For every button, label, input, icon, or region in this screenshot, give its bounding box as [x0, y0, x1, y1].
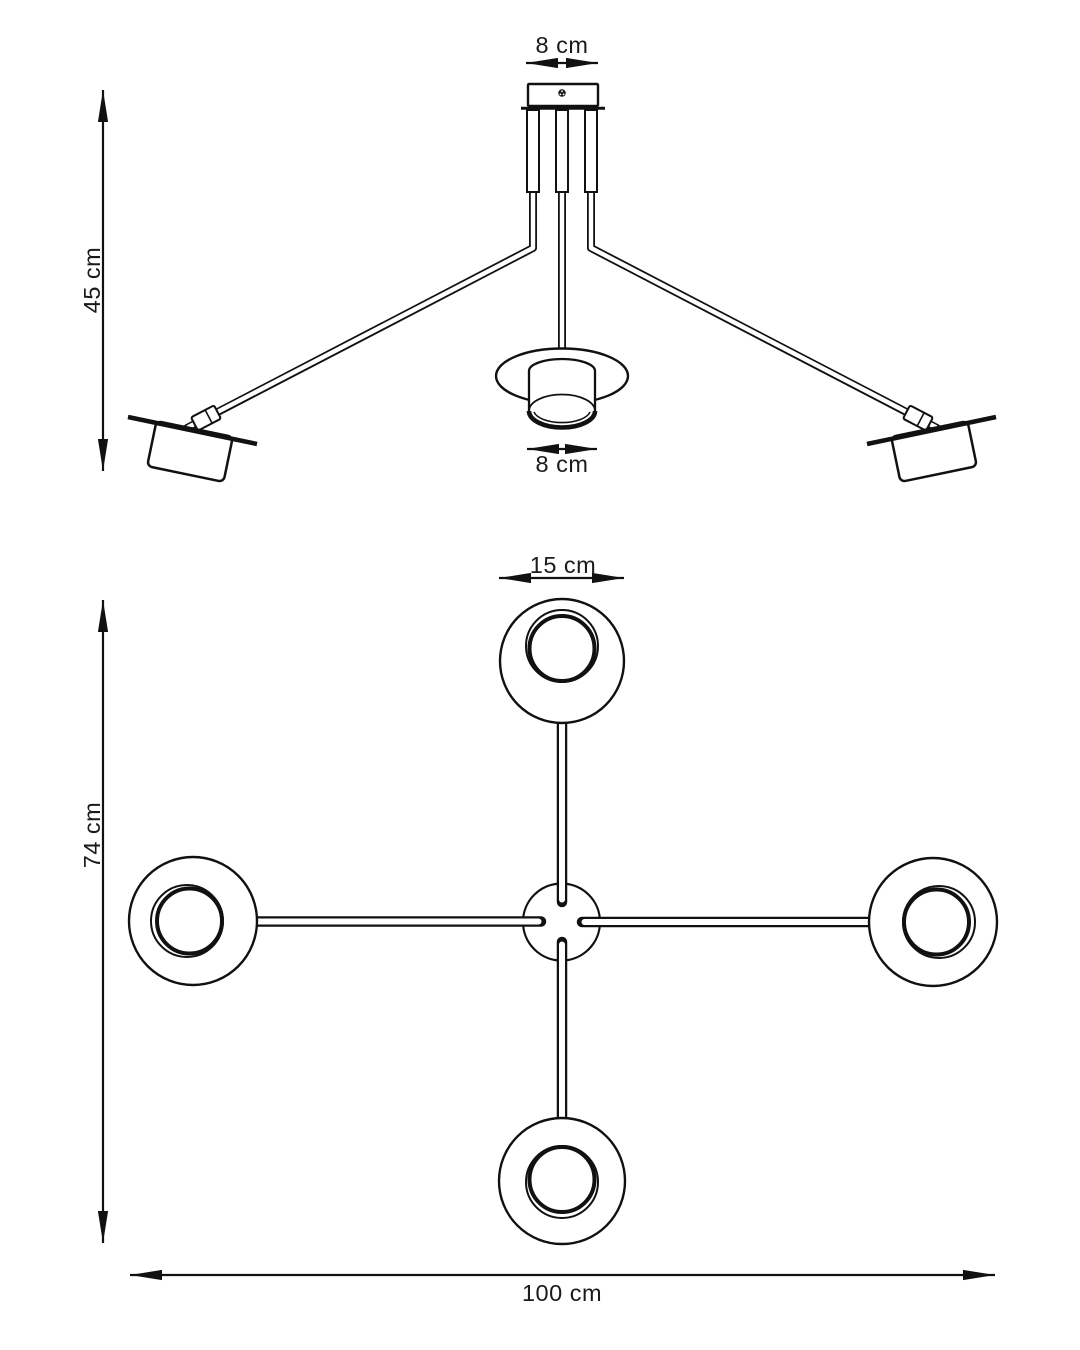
dim-shade-width: 8 cm — [527, 449, 597, 477]
plan-spot-top — [500, 599, 624, 723]
dim-height: 45 cm — [79, 90, 105, 471]
dim-horizontal-span-label: 100 cm — [522, 1280, 602, 1306]
dim-shade-width-label: 8 cm — [536, 451, 589, 477]
technical-drawing-svg: 8 cm 8 cm 45 cm — [0, 0, 1080, 1350]
dim-shade-diameter: 15 cm — [499, 552, 624, 578]
dim-shade-diameter-label: 15 cm — [530, 552, 597, 578]
lamp-dimension-drawing: 8 cm 8 cm 45 cm — [0, 0, 1080, 1350]
dim-height-label: 45 cm — [79, 247, 105, 314]
arm-joint-left — [191, 405, 221, 430]
dim-vertical-span: 74 cm — [79, 600, 105, 1243]
plan-spot-bottom — [499, 1118, 625, 1244]
top-plan-view: 15 cm 74 cm 100 cm — [79, 552, 997, 1306]
side-elevation-view: 8 cm 8 cm 45 cm — [79, 32, 996, 482]
dim-vertical-span-label: 74 cm — [79, 802, 105, 869]
plan-spot-right — [869, 858, 997, 986]
arm-left — [187, 188, 533, 428]
dim-horizontal-span: 100 cm — [130, 1275, 995, 1306]
arm-joint-right — [903, 405, 933, 430]
plan-spot-left — [129, 857, 257, 985]
arm-right — [591, 188, 937, 428]
tube-sleeve-center — [556, 110, 568, 192]
canopy-screw — [558, 89, 566, 97]
dim-canopy-width-label: 8 cm — [536, 32, 589, 58]
tube-sleeve-left — [527, 110, 539, 192]
tube-sleeve-right — [585, 110, 597, 192]
dim-canopy-width: 8 cm — [526, 32, 598, 63]
